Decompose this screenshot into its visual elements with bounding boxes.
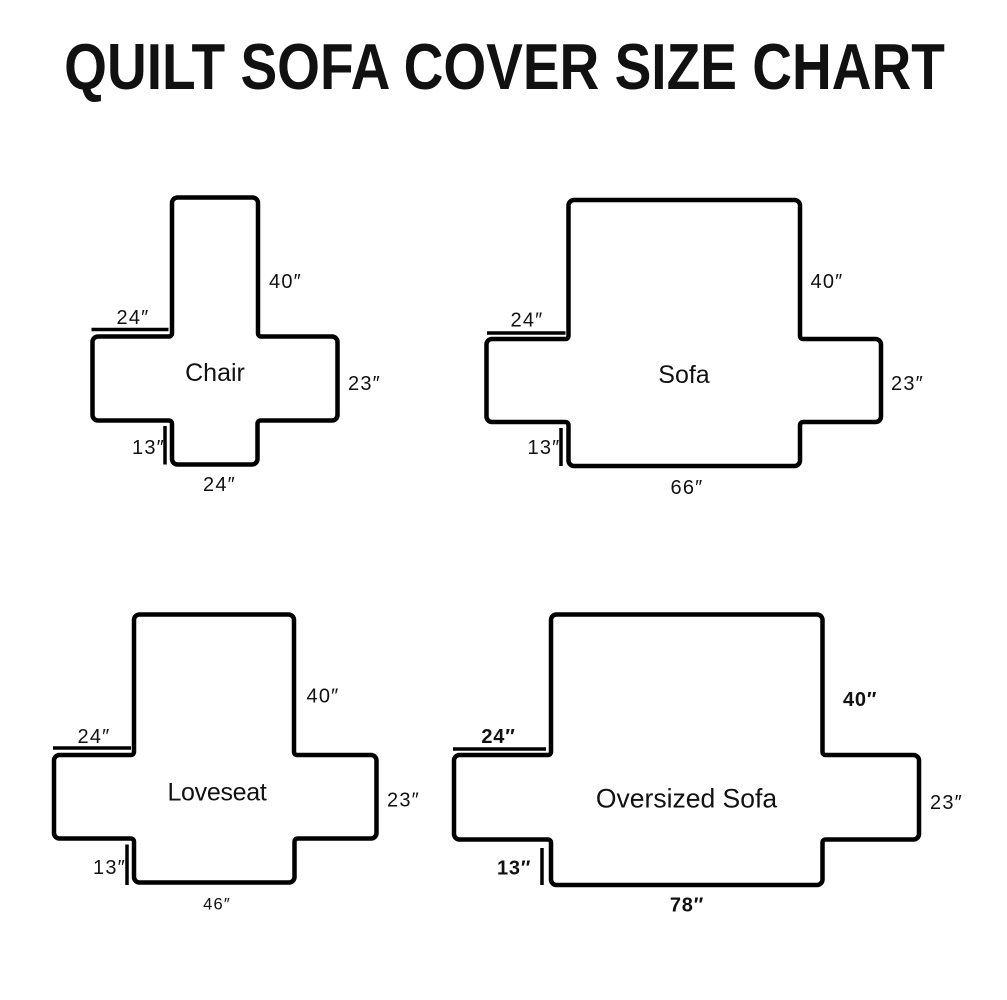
svg-text:24″: 24″ bbox=[511, 310, 544, 332]
svg-text:24″: 24″ bbox=[203, 474, 236, 496]
svg-text:23″: 23″ bbox=[930, 792, 963, 814]
svg-text:40″: 40″ bbox=[843, 689, 877, 711]
svg-text:Chair: Chair bbox=[185, 359, 245, 387]
svg-text:23″: 23″ bbox=[891, 373, 924, 395]
svg-text:13″: 13″ bbox=[93, 857, 126, 879]
svg-text:40″: 40″ bbox=[269, 271, 302, 293]
svg-text:13″: 13″ bbox=[132, 437, 165, 459]
svg-text:24″: 24″ bbox=[78, 726, 111, 748]
svg-text:40″: 40″ bbox=[307, 686, 340, 708]
svg-text:66″: 66″ bbox=[671, 477, 704, 499]
svg-text:13″: 13″ bbox=[497, 858, 531, 880]
svg-text:46″: 46″ bbox=[203, 896, 231, 914]
svg-text:24″: 24″ bbox=[481, 726, 515, 748]
svg-text:Oversized Sofa: Oversized Sofa bbox=[596, 784, 777, 814]
svg-text:78″: 78″ bbox=[670, 895, 704, 917]
svg-text:24″: 24″ bbox=[117, 307, 150, 329]
svg-text:Sofa: Sofa bbox=[658, 361, 710, 389]
svg-text:13″: 13″ bbox=[528, 437, 561, 459]
svg-text:40″: 40″ bbox=[811, 271, 844, 293]
svg-text:Loveseat: Loveseat bbox=[167, 779, 266, 807]
svg-text:23″: 23″ bbox=[387, 790, 420, 812]
svg-text:23″: 23″ bbox=[348, 373, 381, 395]
svg-text:QUILT SOFA COVER SIZE CHART: QUILT SOFA COVER SIZE CHART bbox=[64, 30, 945, 103]
